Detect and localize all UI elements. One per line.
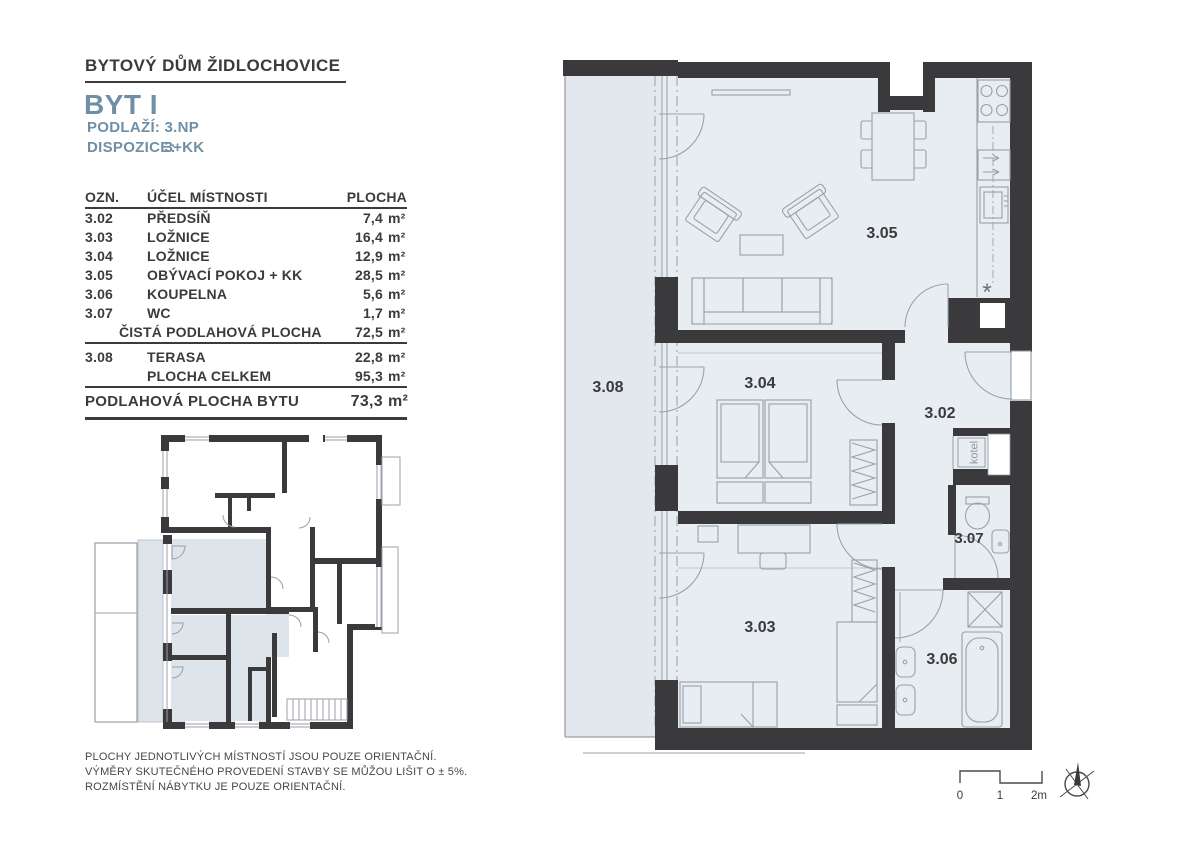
room-label-wc: 3.07 bbox=[954, 530, 983, 547]
project-title: BYTOVÝ DŮM ŽIDLOCHOVICE bbox=[85, 56, 346, 83]
total-area-unit: m² bbox=[383, 367, 407, 386]
total-area-label: PLOCHA CELKEM bbox=[85, 367, 337, 386]
table-header-row: OZN. ÚČEL MÍSTNOSTI PLOCHA bbox=[85, 189, 407, 209]
net-area-value: 72,5 bbox=[337, 323, 383, 342]
scale-tick-1: 1 bbox=[997, 790, 1003, 802]
col-header-name: ÚČEL MÍSTNOSTI bbox=[147, 189, 337, 206]
disclaimer-line: VÝMĚRY SKUTEČNÉHO PROVEDENÍ STAVBY SE MŮ… bbox=[85, 765, 467, 780]
summary-value: 73,3 bbox=[337, 393, 383, 411]
disclaimer-line: ROZMÍSTĚNÍ NÁBYTKU JE POUZE ORIENTAČNÍ. bbox=[85, 780, 467, 795]
table-row: 3.03 LOŽNICE 16,4 m² bbox=[85, 228, 407, 247]
floor-label: PODLAŽÍ: bbox=[87, 119, 160, 136]
room-id: 3.07 bbox=[85, 304, 147, 323]
col-header-area: PLOCHA bbox=[337, 189, 407, 206]
room-area-unit: m² bbox=[383, 304, 407, 323]
summary-label: PODLAHOVÁ PLOCHA BYTU bbox=[85, 393, 337, 411]
room-id: 3.08 bbox=[85, 348, 147, 367]
room-id: 3.03 bbox=[85, 228, 147, 247]
room-label-bedroom2: 3.03 bbox=[744, 619, 775, 636]
room-area-unit: m² bbox=[383, 266, 407, 285]
main-floor-plan: * bbox=[555, 50, 1040, 755]
room-area: 5,6 bbox=[337, 285, 383, 304]
entrance-door-slab bbox=[1011, 351, 1031, 400]
unit-title: BYT I bbox=[84, 89, 158, 121]
room-label-hall: 3.02 bbox=[924, 405, 955, 422]
room-area: 7,4 bbox=[337, 209, 383, 228]
room-name: PŘEDSÍŇ bbox=[147, 209, 337, 228]
total-area-row: PLOCHA CELKEM 95,3 m² bbox=[85, 367, 407, 388]
room-label-living: 3.05 bbox=[866, 225, 897, 242]
room-id: 3.02 bbox=[85, 209, 147, 228]
room-area: 22,8 bbox=[337, 348, 383, 367]
room-area: 12,9 bbox=[337, 247, 383, 266]
scale-tick-2m: 2m bbox=[1031, 790, 1047, 802]
room-area: 16,4 bbox=[337, 228, 383, 247]
scale-tick-0: 0 bbox=[957, 790, 963, 802]
room-area-unit: m² bbox=[383, 285, 407, 304]
total-area-value: 95,3 bbox=[337, 367, 383, 386]
room-name: TERASA bbox=[147, 348, 337, 367]
boiler-closet: kotel bbox=[953, 436, 985, 469]
north-compass-icon bbox=[1056, 760, 1098, 806]
overview-stairs bbox=[287, 699, 347, 720]
room-area-unit: m² bbox=[383, 348, 407, 367]
table-row: 3.06 KOUPELNA 5,6 m² bbox=[85, 285, 407, 304]
room-area: 1,7 bbox=[337, 304, 383, 323]
boiler-symbol: * bbox=[982, 279, 991, 306]
room-label-bedroom1: 3.04 bbox=[744, 375, 775, 392]
room-area-unit: m² bbox=[383, 209, 407, 228]
overview-terrace bbox=[95, 540, 163, 722]
floor-plan-sheet: BYTOVÝ DŮM ŽIDLOCHOVICE BYT I PODLAŽÍ: 3… bbox=[0, 0, 1200, 847]
room-id: 3.04 bbox=[85, 247, 147, 266]
room-area-unit: m² bbox=[383, 247, 407, 266]
summary-unit: m² bbox=[383, 393, 407, 411]
col-header-id: OZN. bbox=[85, 189, 147, 206]
room-area-table: OZN. ÚČEL MÍSTNOSTI PLOCHA 3.02 PŘEDSÍŇ … bbox=[85, 189, 407, 388]
room-name: LOŽNICE bbox=[147, 247, 337, 266]
room-name: WC bbox=[147, 304, 337, 323]
boiler-label: kotel bbox=[968, 441, 980, 464]
room-label-terrace: 3.08 bbox=[592, 379, 623, 396]
room-label-bathroom: 3.06 bbox=[926, 651, 957, 668]
net-area-row: ČISTÁ PODLAHOVÁ PLOCHA 72,5 m² bbox=[85, 323, 407, 344]
scale-bar: 0 1 2m bbox=[950, 763, 1055, 803]
table-row: 3.04 LOŽNICE 12,9 m² bbox=[85, 247, 407, 266]
room-name: OBÝVACÍ POKOJ + KK bbox=[147, 266, 337, 285]
apartment-floor-area-summary: PODLAHOVÁ PLOCHA BYTU 73,3 m² bbox=[85, 393, 407, 420]
table-row: 3.07 WC 1,7 m² bbox=[85, 304, 407, 323]
room-area: 28,5 bbox=[337, 266, 383, 285]
overview-notch bbox=[309, 435, 323, 445]
table-row: 3.05 OBÝVACÍ POKOJ + KK 28,5 m² bbox=[85, 266, 407, 285]
table-row: 3.02 PŘEDSÍŇ 7,4 m² bbox=[85, 209, 407, 228]
net-area-label: ČISTÁ PODLAHOVÁ PLOCHA bbox=[85, 323, 337, 342]
room-name: KOUPELNA bbox=[147, 285, 337, 304]
floor-info-row: PODLAŽÍ: 3.NP bbox=[87, 119, 199, 136]
room-id: 3.05 bbox=[85, 266, 147, 285]
layout-value: 3+KK bbox=[164, 139, 204, 156]
room-area-unit: m² bbox=[383, 228, 407, 247]
room-name: LOŽNICE bbox=[147, 228, 337, 247]
terrace-row: 3.08 TERASA 22,8 m² bbox=[85, 348, 407, 367]
disclaimer-text: PLOCHY JEDNOTLIVÝCH MÍSTNOSTÍ JSOU POUZE… bbox=[85, 750, 467, 795]
facade-notch bbox=[890, 62, 923, 96]
net-area-unit: m² bbox=[383, 323, 407, 342]
layout-info-row: DISPOZICE: 3+KK bbox=[87, 139, 204, 156]
layout-label: DISPOZICE: bbox=[87, 139, 160, 156]
floor-value: 3.NP bbox=[164, 119, 199, 136]
disclaimer-line: PLOCHY JEDNOTLIVÝCH MÍSTNOSTÍ JSOU POUZE… bbox=[85, 750, 467, 765]
room-id: 3.06 bbox=[85, 285, 147, 304]
overview-balconies bbox=[382, 457, 400, 633]
overview-floor-plan bbox=[85, 427, 415, 747]
